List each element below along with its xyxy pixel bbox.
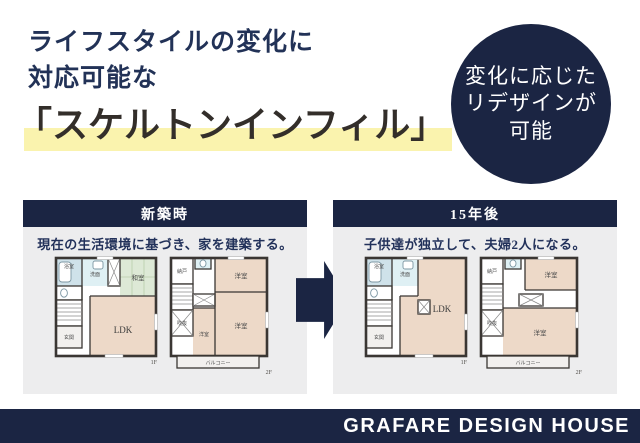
balcony-label: バルコニー bbox=[516, 361, 541, 367]
poster-canvas: ライフスタイルの変化に 対応可能な 「スケルトンインフィル」 変化に応じた リデ… bbox=[0, 0, 640, 443]
floorplan-after-2f: 納戸 洋室 洋室 吹抜 バルコニー 2F bbox=[478, 252, 584, 378]
ldk-label: LDK bbox=[433, 304, 452, 314]
western-a-label: 洋室 bbox=[235, 271, 249, 280]
sink-icon bbox=[403, 261, 413, 269]
floor1-label: 1F bbox=[461, 360, 468, 366]
window bbox=[97, 256, 113, 259]
floor1-label: 1F bbox=[151, 360, 158, 366]
floor2-label: 2F bbox=[576, 370, 583, 376]
badge-line2: リデザインが bbox=[465, 90, 597, 117]
floor2-label: 2F bbox=[266, 370, 273, 376]
sink-icon bbox=[93, 261, 103, 269]
window bbox=[228, 256, 244, 259]
brand-logo-text: GRAFARE DESIGN HOUSE bbox=[343, 415, 630, 438]
toilet-room bbox=[366, 286, 392, 300]
tatami-label: 和室 bbox=[132, 273, 146, 282]
floorplan-after-1f: 浴室 洗面 玄関 LDK 1F bbox=[363, 252, 469, 378]
window bbox=[407, 256, 423, 259]
floorplan-before-1f: 浴室 洗面 和室 玄関 LDK 1F bbox=[53, 252, 159, 378]
window bbox=[154, 314, 157, 330]
redesign-badge: 変化に応じた リデザインが 可能 bbox=[451, 24, 611, 184]
badge-line1: 変化に応じた bbox=[465, 63, 597, 90]
void-label: 吹抜 bbox=[177, 320, 187, 327]
storage-label: 納戸 bbox=[177, 268, 187, 275]
headline-line1: ライフスタイルの変化に bbox=[28, 22, 314, 58]
footer-bar: GRAFARE DESIGN HOUSE bbox=[0, 409, 640, 443]
toilet-room bbox=[56, 286, 82, 300]
ldk-label: LDK bbox=[114, 325, 133, 335]
window bbox=[538, 256, 554, 259]
main-title: 「スケルトンインフィル」 bbox=[16, 96, 446, 148]
ldk-room bbox=[400, 296, 418, 356]
void-label: 吹抜 bbox=[487, 320, 497, 327]
entrance-label: 玄関 bbox=[374, 334, 384, 341]
western-b-label: 洋室 bbox=[235, 321, 249, 330]
window bbox=[575, 312, 578, 328]
western-big-label: 洋室 bbox=[534, 328, 548, 337]
storage-label: 納戸 bbox=[487, 268, 497, 275]
window bbox=[105, 354, 123, 357]
panel-after-caption: 子供達が独立して、夫婦2人になる。 bbox=[333, 234, 617, 253]
toilet-icon bbox=[61, 289, 68, 297]
western-a-label: 洋室 bbox=[545, 270, 559, 279]
entrance-label: 玄関 bbox=[64, 334, 74, 341]
toilet-icon bbox=[200, 260, 206, 267]
toilet-icon bbox=[371, 289, 378, 297]
panel-before-caption: 現在の生活環境に基づき、家を建築する。 bbox=[23, 234, 307, 253]
bath-label: 浴室 bbox=[64, 263, 74, 270]
western-room-c bbox=[193, 308, 215, 356]
window bbox=[265, 312, 268, 328]
main-title-block: 「スケルトンインフィル」 bbox=[16, 96, 446, 156]
panel-before: 新築時 現在の生活環境に基づき、家を建築する。 bbox=[23, 200, 307, 394]
bath-label: 浴室 bbox=[374, 263, 384, 270]
panel-after: 15年後 子供達が独立して、夫婦2人になる。 bbox=[333, 200, 617, 394]
panel-before-header: 新築時 bbox=[23, 200, 307, 227]
floorplan-before-2f: 納戸 洋室 洋室 洋室 吹抜 バルコニー 2F bbox=[168, 252, 274, 378]
balcony-label: バルコニー bbox=[206, 361, 231, 367]
headline-line2: 対応可能な bbox=[28, 58, 158, 94]
panel-after-header: 15年後 bbox=[333, 200, 617, 227]
wash-label: 洗面 bbox=[90, 271, 100, 278]
window bbox=[415, 354, 433, 357]
toilet-icon bbox=[510, 260, 516, 267]
western-c-label: 洋室 bbox=[199, 331, 209, 338]
wash-label: 洗面 bbox=[400, 271, 410, 278]
window bbox=[464, 314, 467, 330]
badge-line3: 可能 bbox=[509, 118, 553, 145]
